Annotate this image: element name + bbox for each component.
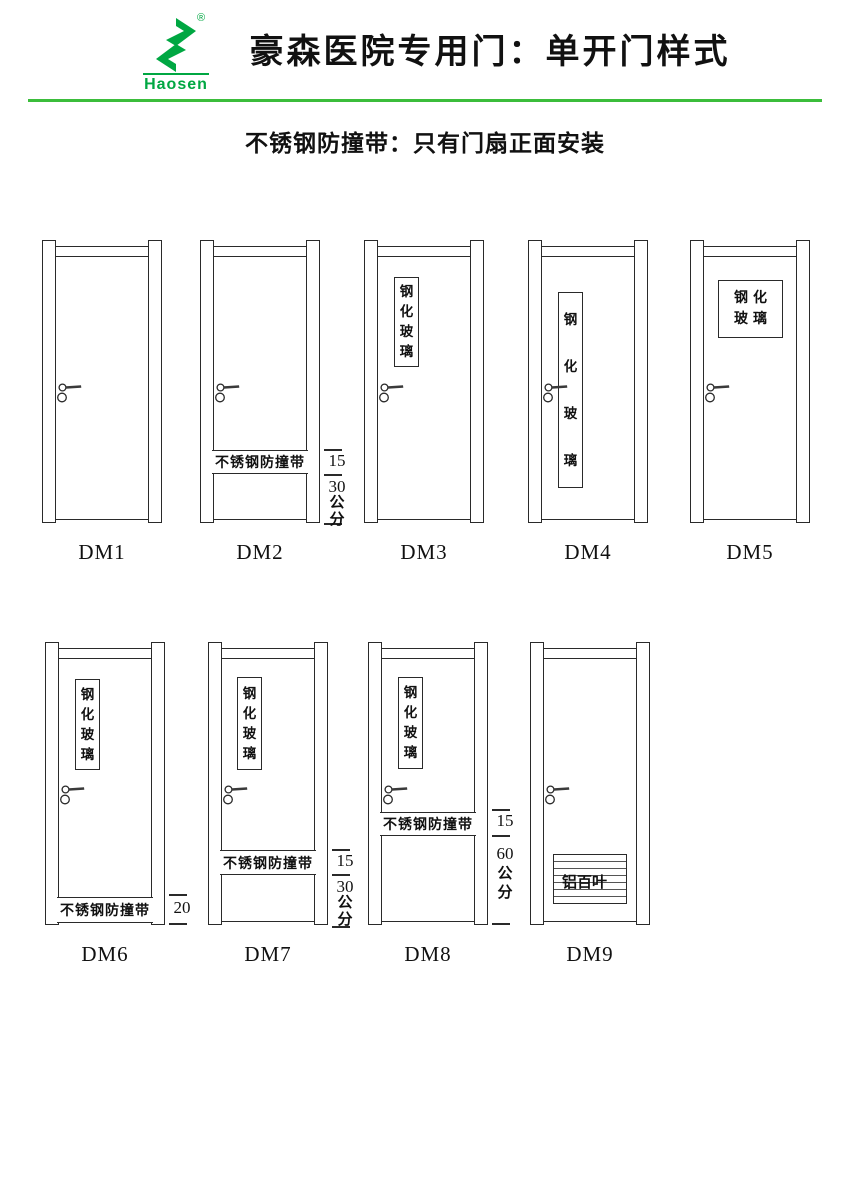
door-frame-right-post: [148, 240, 162, 523]
door-diagram-dm4: 钢化玻璃 DM4: [528, 240, 648, 523]
dim-value: 30: [337, 878, 354, 895]
glass-panel-label: 钢化玻璃: [399, 282, 414, 362]
door-frame-left-post: [690, 240, 704, 523]
dim-unit: 公分: [497, 865, 514, 903]
anti-collision-band: 不锈钢防撞带: [380, 812, 476, 836]
dim-value-group: 60 公分: [490, 845, 520, 903]
door-frame-left-post: [364, 240, 378, 523]
door-frame-left-post: [200, 240, 214, 523]
glass-panel: 钢化玻璃: [75, 679, 100, 770]
door-handle-icon: [703, 381, 737, 405]
door-handle-icon: [55, 381, 89, 405]
door-label: DM6: [45, 942, 165, 967]
door-diagram-dm1: DM1: [42, 240, 162, 523]
door-handle-icon: [381, 783, 415, 807]
anti-collision-band: 不锈钢防撞带: [220, 850, 316, 875]
dim-tick: [324, 474, 342, 476]
door-diagram-dm9: 铝百叶 DM9: [530, 642, 650, 925]
dim-value: 15: [490, 811, 520, 831]
dimension-annotation: 15 30 公分: [322, 240, 352, 525]
glass-panel: 钢化玻璃: [398, 677, 423, 769]
door-handle-icon: [541, 381, 575, 405]
dimension-annotation: 15 60 公分: [490, 642, 520, 927]
dim-tick: [169, 923, 187, 925]
door-frame-right-post: [151, 642, 165, 925]
dim-unit: 公分: [329, 495, 346, 529]
band-label: 不锈钢防撞带: [223, 853, 313, 873]
glass-panel-label: 钢化玻璃: [80, 685, 95, 765]
louver-panel: 铝百叶: [553, 854, 627, 904]
door-frame-right-post: [470, 240, 484, 523]
door-frame-right-post: [634, 240, 648, 523]
door-label: DM3: [364, 540, 484, 565]
haosen-logo-diamond-icon: [154, 17, 198, 73]
dim-value-group: 30 公分: [322, 478, 352, 529]
page-title: 豪森医院专用门：单开门样式: [210, 24, 770, 73]
door-label: DM7: [208, 942, 328, 967]
dim-tick: [332, 874, 350, 876]
dim-value: 15: [322, 451, 352, 471]
dim-unit: 公分: [337, 895, 354, 929]
glass-panel: 钢化玻璃: [237, 677, 262, 770]
door-frame-left-post: [528, 240, 542, 523]
logo-underline: [143, 73, 209, 75]
door-handle-icon: [213, 381, 247, 405]
door-frame-left-post: [42, 240, 56, 523]
door-frame-right-post: [636, 642, 650, 925]
glass-panel-label: 钢化: [734, 288, 772, 309]
dim-value: 20: [167, 898, 197, 918]
door-handle-icon: [543, 783, 577, 807]
dim-value: 15: [330, 851, 360, 871]
door-label: DM9: [530, 942, 650, 967]
door-diagram-dm3: 钢化玻璃 DM3: [364, 240, 484, 523]
brand-wordmark: Haosen: [139, 76, 213, 94]
door-frame-left-post: [530, 642, 544, 925]
subtitle-note: 不锈钢防撞带：只有门扇正面安装: [0, 124, 850, 158]
door-handle-icon: [377, 381, 411, 405]
door-label: DM4: [528, 540, 648, 565]
glass-panel-label: 玻璃: [734, 309, 772, 330]
door-frame-left-post: [208, 642, 222, 925]
door-frame-left-post: [45, 642, 59, 925]
louver-label: 铝百叶: [562, 871, 607, 892]
anti-collision-band: 不锈钢防撞带: [57, 897, 153, 923]
green-divider-line: [28, 99, 822, 102]
glass-panel: 钢化 玻璃: [718, 280, 783, 338]
glass-panel-label: 钢化玻璃: [403, 683, 418, 763]
door-handle-icon: [58, 783, 92, 807]
dim-tick: [492, 835, 510, 837]
registered-trademark-mark: ®: [197, 12, 205, 24]
anti-collision-band: 不锈钢防撞带: [212, 450, 308, 474]
door-frame-right-post: [306, 240, 320, 523]
door-frame-right-post: [796, 240, 810, 523]
dim-value: 30: [329, 478, 346, 495]
glass-panel-label: 钢化玻璃: [242, 684, 257, 764]
door-handle-icon: [221, 783, 255, 807]
door-diagram-dm5: 钢化 玻璃 DM5: [690, 240, 810, 523]
door-label: DM8: [368, 942, 488, 967]
door-diagram-dm8: 钢化玻璃 不锈钢防撞带 15 60 公分 DM8: [368, 642, 488, 925]
dimension-annotation: 20: [167, 642, 197, 927]
door-frame-right-post: [314, 642, 328, 925]
dim-tick: [169, 894, 187, 896]
band-label: 不锈钢防撞带: [215, 452, 305, 472]
door-diagram-dm2: 不锈钢防撞带 15 30 公分 DM2: [200, 240, 320, 523]
glass-panel: 钢化玻璃: [394, 277, 419, 367]
door-frame-left-post: [368, 642, 382, 925]
door-label: DM1: [42, 540, 162, 565]
dimension-annotation: 15 30 公分: [330, 642, 360, 927]
door-label: DM2: [200, 540, 320, 565]
dim-value: 60: [497, 845, 514, 862]
door-label: DM5: [690, 540, 810, 565]
dim-value-group: 30 公分: [330, 878, 360, 929]
band-label: 不锈钢防撞带: [383, 814, 473, 834]
dim-tick: [492, 923, 510, 925]
spec-sheet-page: ® Haosen 豪森医院专用门：单开门样式 不锈钢防撞带：只有门扇正面安装 D…: [0, 0, 850, 1202]
door-diagram-dm7: 钢化玻璃 不锈钢防撞带 15 30 公分 DM7: [208, 642, 328, 925]
band-label: 不锈钢防撞带: [60, 900, 150, 920]
door-diagram-dm6: 钢化玻璃 不锈钢防撞带 20 DM6: [45, 642, 165, 925]
door-frame-right-post: [474, 642, 488, 925]
